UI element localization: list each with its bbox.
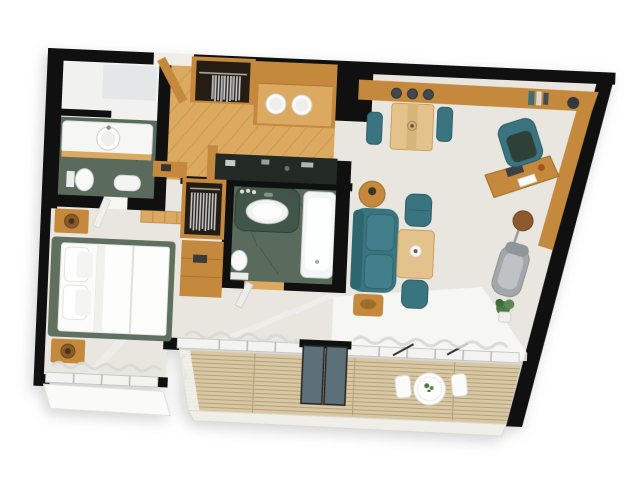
toilet xyxy=(231,250,248,271)
guest-bath-south-wall xyxy=(47,194,105,209)
counter-item xyxy=(261,159,269,164)
sofa-cushion xyxy=(366,214,396,251)
hall-cabinet-item xyxy=(161,164,171,171)
guest-bath-south-wall-2 xyxy=(127,198,165,212)
bedroom-window-ledge xyxy=(42,384,171,416)
counter-item xyxy=(225,160,235,166)
plant-pot xyxy=(499,312,511,323)
floor-plan-stage: 3D floor plan of a one-bedroom apartment… xyxy=(0,0,640,480)
balcony-bench-right xyxy=(451,373,468,396)
dining-chair-right xyxy=(436,107,452,142)
ottoman xyxy=(401,280,428,309)
bathtub-inner xyxy=(305,197,332,270)
pillow-top xyxy=(76,251,93,278)
book xyxy=(536,91,542,105)
room-guest-bathroom: Guest Bathroom xyxy=(58,61,160,201)
floor-plan-canvas: 3D floor plan of a one-bedroom apartment… xyxy=(0,0,640,480)
room-balcony: Balcony xyxy=(174,350,525,437)
sliding-glass-door-left xyxy=(301,345,325,404)
dresser-item xyxy=(193,254,207,263)
apartment: Entry Hall Balcony Guest Bathroom xyxy=(32,48,616,440)
bathroom-south-wall xyxy=(220,280,244,289)
pillow-top xyxy=(74,289,91,316)
dark-stone-counter xyxy=(215,153,338,184)
toilet-tank xyxy=(66,171,75,187)
table-decor xyxy=(427,390,430,392)
decor-vase xyxy=(423,89,433,99)
toilet xyxy=(75,168,94,191)
balcony-bench-left xyxy=(395,375,412,398)
dining-chair-left xyxy=(366,112,382,145)
bidet xyxy=(114,175,141,191)
decor-vase xyxy=(391,88,401,98)
sofa-cushion xyxy=(364,254,393,289)
counter-item xyxy=(301,162,313,168)
book xyxy=(543,93,549,105)
faucet xyxy=(264,193,273,197)
floor-lamp-shade xyxy=(513,210,534,231)
sliding-glass-door-right xyxy=(324,346,348,405)
mirror-reflection xyxy=(102,64,157,100)
toilet-tank xyxy=(230,272,248,280)
hanging-clothes xyxy=(190,192,216,231)
dresser xyxy=(179,240,223,298)
book xyxy=(528,91,535,105)
decor-vase xyxy=(407,89,417,99)
